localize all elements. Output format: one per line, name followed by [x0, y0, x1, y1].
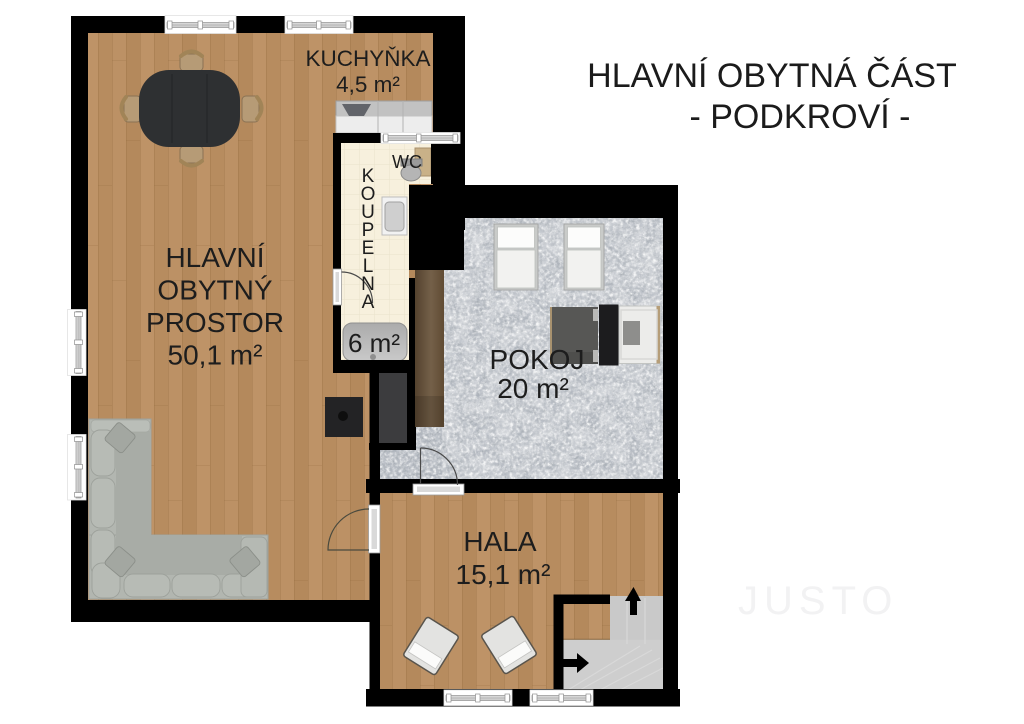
svg-text:6 m²: 6 m² — [348, 328, 400, 358]
svg-text:20 m²: 20 m² — [497, 373, 569, 404]
svg-text:- PODKROVÍ -: - PODKROVÍ - — [689, 98, 910, 136]
svg-text:4,5 m²: 4,5 m² — [336, 72, 400, 97]
svg-text:50,1 m²: 50,1 m² — [168, 340, 263, 371]
svg-text:HLAVNÍ OBYTNÁ ČÁST: HLAVNÍ OBYTNÁ ČÁST — [587, 57, 957, 95]
svg-text:15,1 m²: 15,1 m² — [456, 559, 551, 590]
svg-text:JUSTO: JUSTO — [738, 579, 898, 623]
svg-text:PROSTOR: PROSTOR — [146, 307, 284, 338]
svg-text:OBYTNÝ: OBYTNÝ — [157, 275, 272, 306]
svg-text:A: A — [362, 292, 375, 313]
svg-text:HLAVNÍ: HLAVNÍ — [165, 242, 264, 273]
svg-text:POKOJ: POKOJ — [490, 344, 585, 375]
svg-text:HALA: HALA — [463, 526, 536, 557]
svg-text:WC: WC — [392, 152, 422, 172]
svg-text:KUCHYŇKA: KUCHYŇKA — [305, 46, 430, 71]
